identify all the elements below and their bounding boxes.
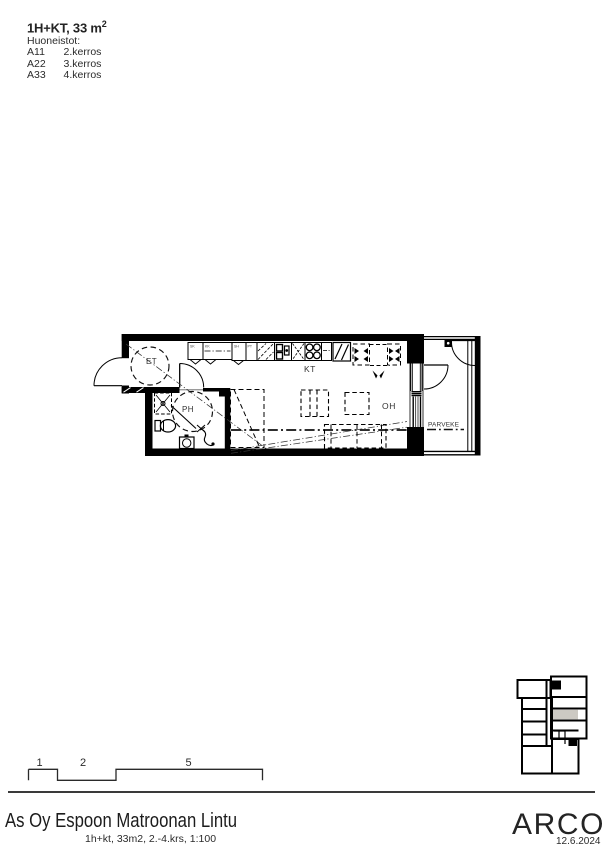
svg-text:1: 1: [37, 757, 43, 769]
svg-text:KK: KK: [205, 345, 210, 349]
svg-text:KT: KT: [304, 364, 316, 374]
svg-text:PARVEKE: PARVEKE: [428, 422, 460, 429]
svg-text:SK: SK: [190, 345, 195, 349]
svg-text:PT: PT: [248, 345, 253, 349]
svg-text:SH: SH: [234, 345, 239, 349]
svg-text:OH: OH: [382, 401, 396, 411]
svg-text:PH: PH: [182, 405, 194, 414]
svg-text:2: 2: [80, 757, 86, 769]
svg-text:ET: ET: [146, 357, 157, 366]
svg-text:5: 5: [186, 757, 192, 769]
